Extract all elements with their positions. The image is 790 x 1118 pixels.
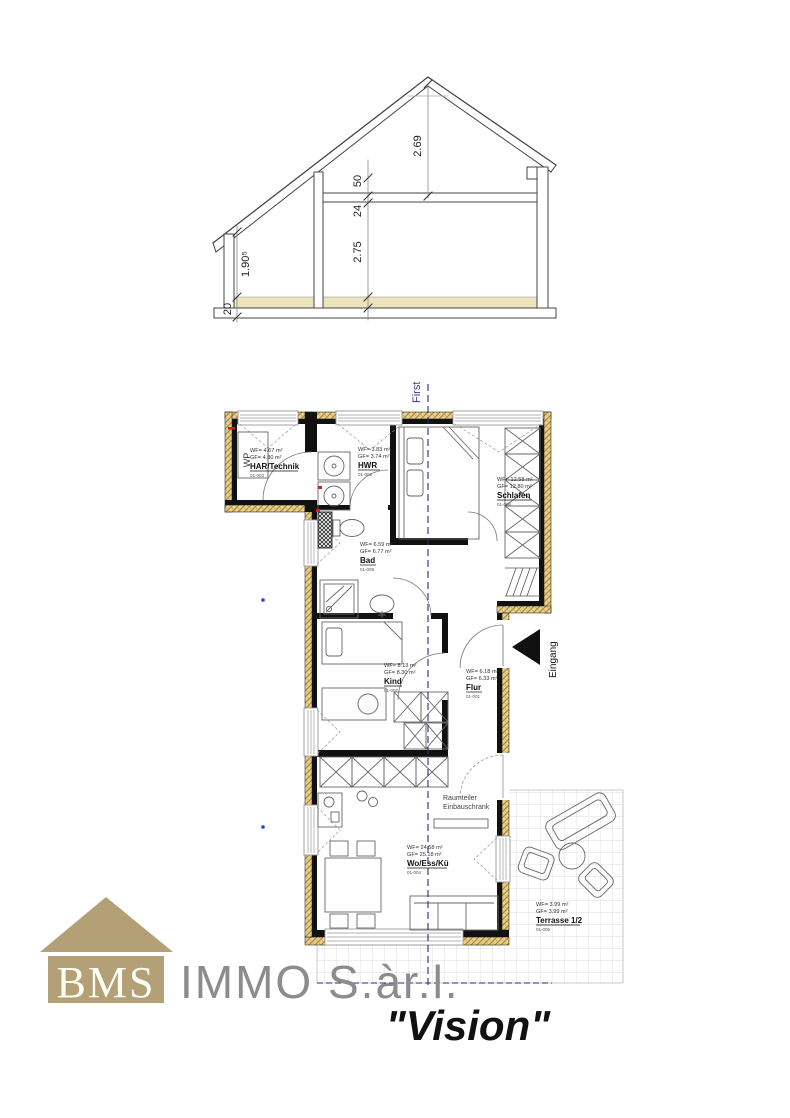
floorplan-sheet: 2.69 50 24 2.75 1.90⁵ 20 <box>0 0 790 1118</box>
divider-label-1: Raumteiler <box>443 795 478 802</box>
section-drawing: 2.69 50 24 2.75 1.90⁵ 20 <box>213 77 556 322</box>
woessku-name: Wo/Ess/Kü <box>407 859 449 868</box>
divider-label-2: Einbauschrank <box>443 804 490 811</box>
section-floor-strip <box>234 297 537 308</box>
flur-name: Flur <box>466 683 481 692</box>
section-structure <box>224 167 548 308</box>
floor-plan: First Eingang WP Raumteiler Einbauschran… <box>225 382 623 988</box>
dining-set <box>325 841 381 928</box>
couch <box>410 896 498 930</box>
section-dim-ridge: 2.69 <box>408 80 448 200</box>
terrasse-name: Terrasse 1/2 <box>536 916 583 925</box>
har-nr: 01-003 <box>250 473 265 478</box>
entrance-label: Eingang <box>548 641 559 678</box>
har-wf: WF= 4.67 m² <box>250 448 283 454</box>
terrasse-nr: 01-005 <box>536 927 551 932</box>
flur-gf: GF= 6.33 m² <box>466 676 498 682</box>
drawing-canvas: 2.69 50 24 2.75 1.90⁵ 20 <box>0 0 790 1118</box>
desk <box>322 688 386 720</box>
dim-floor: 20 <box>222 303 234 315</box>
bad-gf: GF= 6.77 m² <box>360 549 392 555</box>
woessku-gf: GF= 25.18 m² <box>407 852 442 858</box>
hob-ring <box>357 791 367 801</box>
room-label-bad: WF= 6.59 m² GF= 6.77 m² Bad 01-008 <box>360 542 393 572</box>
hwr-nr: 01-002 <box>358 472 373 477</box>
bad-nr: 01-008 <box>360 567 375 572</box>
schlafen-nr: 01-006 <box>497 502 512 507</box>
room-label-flur: WF= 6.18 m² GF= 6.33 m² Flur 01-001 <box>466 669 499 699</box>
woessku-wf: WF= 24.58 m² <box>407 845 443 851</box>
toilet <box>340 520 364 537</box>
entrance-grate <box>505 568 540 596</box>
dim-knee-wall: 1.90⁵ <box>240 251 252 277</box>
har-name: HAR/Technik <box>250 462 300 471</box>
bad-name: Bad <box>360 556 375 565</box>
double-bed <box>399 427 479 539</box>
kind-name: Kind <box>384 677 402 686</box>
room-label-har-technik: WF= 4.67 m² GF= 4.80 m² HAR/Technik 01-0… <box>250 448 300 478</box>
wardrobe-kind <box>394 692 448 749</box>
dim-beam: 24 <box>352 205 364 217</box>
woessku-nr: 01-004 <box>407 870 422 875</box>
hwr-name: HWR <box>358 461 377 470</box>
room-label-schlafen: WF= 12.58 m² GF= 12.80 m² Schlafen 01-00… <box>497 477 533 507</box>
entrance-arrow-icon <box>512 629 540 665</box>
ridge-label: First <box>411 382 423 403</box>
toilet-tank <box>333 520 340 536</box>
kind-gf: GF= 8.30 m² <box>384 670 416 676</box>
hwr-gf: GF= 3.74 m² <box>358 454 390 460</box>
room-label-kind: WF= 8.13 m² GF= 8.30 m² Kind 01-007 <box>384 663 417 693</box>
flur-wf: WF= 6.18 m² <box>466 669 499 675</box>
kitchen-sink-unit <box>318 793 342 827</box>
terrasse-wf: WF= 3.99 m² <box>536 902 569 908</box>
schlafen-wf: WF= 12.58 m² <box>497 477 533 483</box>
hob-ring <box>369 798 378 807</box>
section-roof <box>213 77 556 252</box>
kind-nr: 01-007 <box>384 688 399 693</box>
flur-nr: 01-001 <box>466 694 481 699</box>
terrasse-gf: GF= 3.99 m² <box>536 909 568 915</box>
bad-wf: WF= 6.59 m² <box>360 542 393 548</box>
hwr-wf: WF= 3.83 m² <box>358 447 391 453</box>
dim-purlin: 50 <box>352 175 364 187</box>
section-dim-chain: 50 24 2.75 <box>352 160 372 320</box>
logo-company-text: IMMO S.àr.l. <box>180 956 460 1008</box>
dim-ridge-height: 2.69 <box>412 135 424 156</box>
dim-room-height: 2.75 <box>352 241 364 262</box>
kitchen-cabinets <box>320 757 448 787</box>
bathroom-sink <box>370 595 394 613</box>
duct-shaft <box>318 512 332 548</box>
logo-brand-text: BMS <box>57 958 156 1007</box>
har-gf: GF= 4.80 m² <box>250 455 282 461</box>
kind-bed <box>322 622 402 664</box>
schlafen-name: Schlafen <box>497 491 530 500</box>
schlafen-gf: GF= 12.80 m² <box>497 484 532 490</box>
project-tagline: "Vision" <box>386 1002 551 1049</box>
kind-wf: WF= 8.13 m² <box>384 663 417 669</box>
logo-house-roof <box>40 897 173 952</box>
desk-chair <box>358 694 378 714</box>
divider-cabinet <box>434 819 488 828</box>
